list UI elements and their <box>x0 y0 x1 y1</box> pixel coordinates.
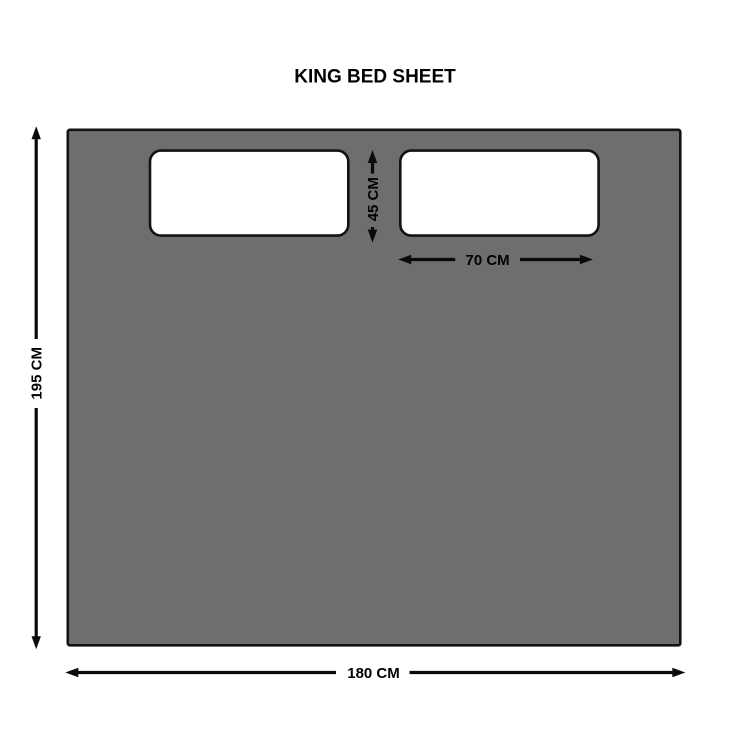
svg-text:180 CM: 180 CM <box>347 665 400 682</box>
svg-text:KING BED SHEET: KING BED SHEET <box>294 67 456 88</box>
svg-text:45 CM: 45 CM <box>365 177 382 221</box>
svg-text:70 CM: 70 CM <box>466 252 510 269</box>
svg-text:195 CM: 195 CM <box>29 347 46 400</box>
